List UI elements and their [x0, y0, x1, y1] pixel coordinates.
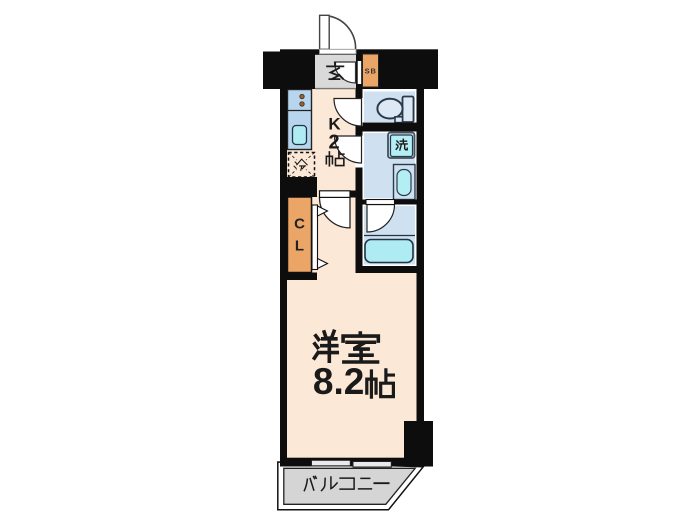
- svg-text:C: C: [294, 216, 305, 233]
- svg-text:8.2: 8.2: [313, 360, 365, 402]
- svg-text:SB: SB: [365, 67, 377, 76]
- svg-text:L: L: [295, 238, 304, 255]
- svg-text:2: 2: [328, 131, 339, 153]
